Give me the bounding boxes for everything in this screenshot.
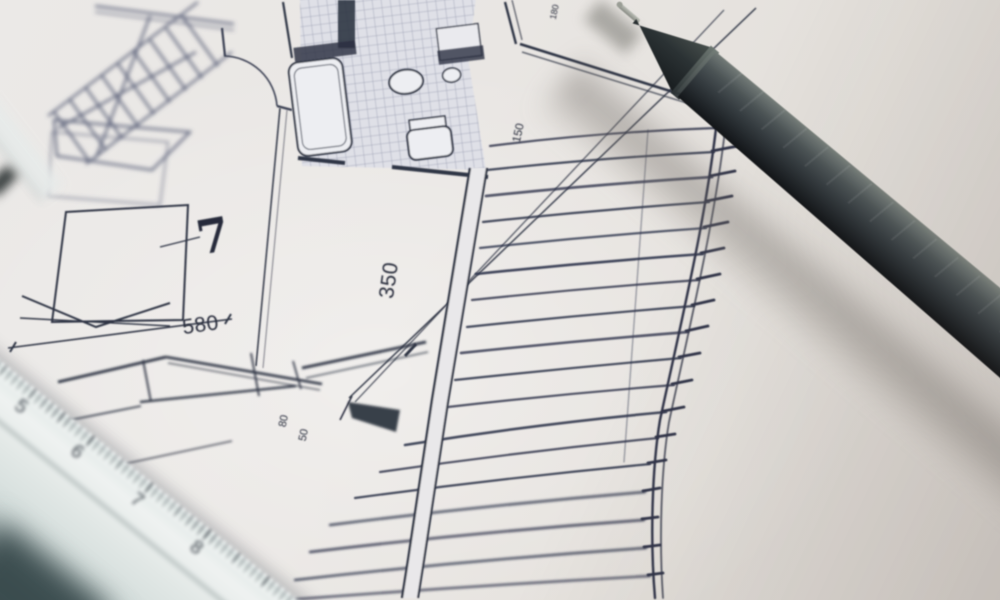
photo-of-floor-plan: 7 580 350 80 50 150 180 5 6 7 8 bbox=[0, 0, 1000, 600]
dim-180-label: 180 bbox=[548, 4, 561, 21]
room-number-label: 7 bbox=[192, 207, 234, 267]
toilet-symbol bbox=[405, 116, 454, 161]
pen-tip bbox=[618, 3, 641, 24]
dim-150-label: 150 bbox=[511, 122, 527, 143]
door-arc-symbol bbox=[222, 28, 292, 110]
dim-80-label: 80 bbox=[277, 414, 291, 428]
dim-580-label: 580 bbox=[181, 311, 220, 339]
dim-50-label: 50 bbox=[297, 428, 311, 442]
decking-hatch-lower bbox=[285, 492, 650, 600]
bathtub-symbol bbox=[288, 57, 353, 157]
bedroom-symbols bbox=[8, 108, 287, 368]
dim-350-label: 350 bbox=[375, 261, 403, 300]
staircase-symbol bbox=[48, 2, 234, 205]
